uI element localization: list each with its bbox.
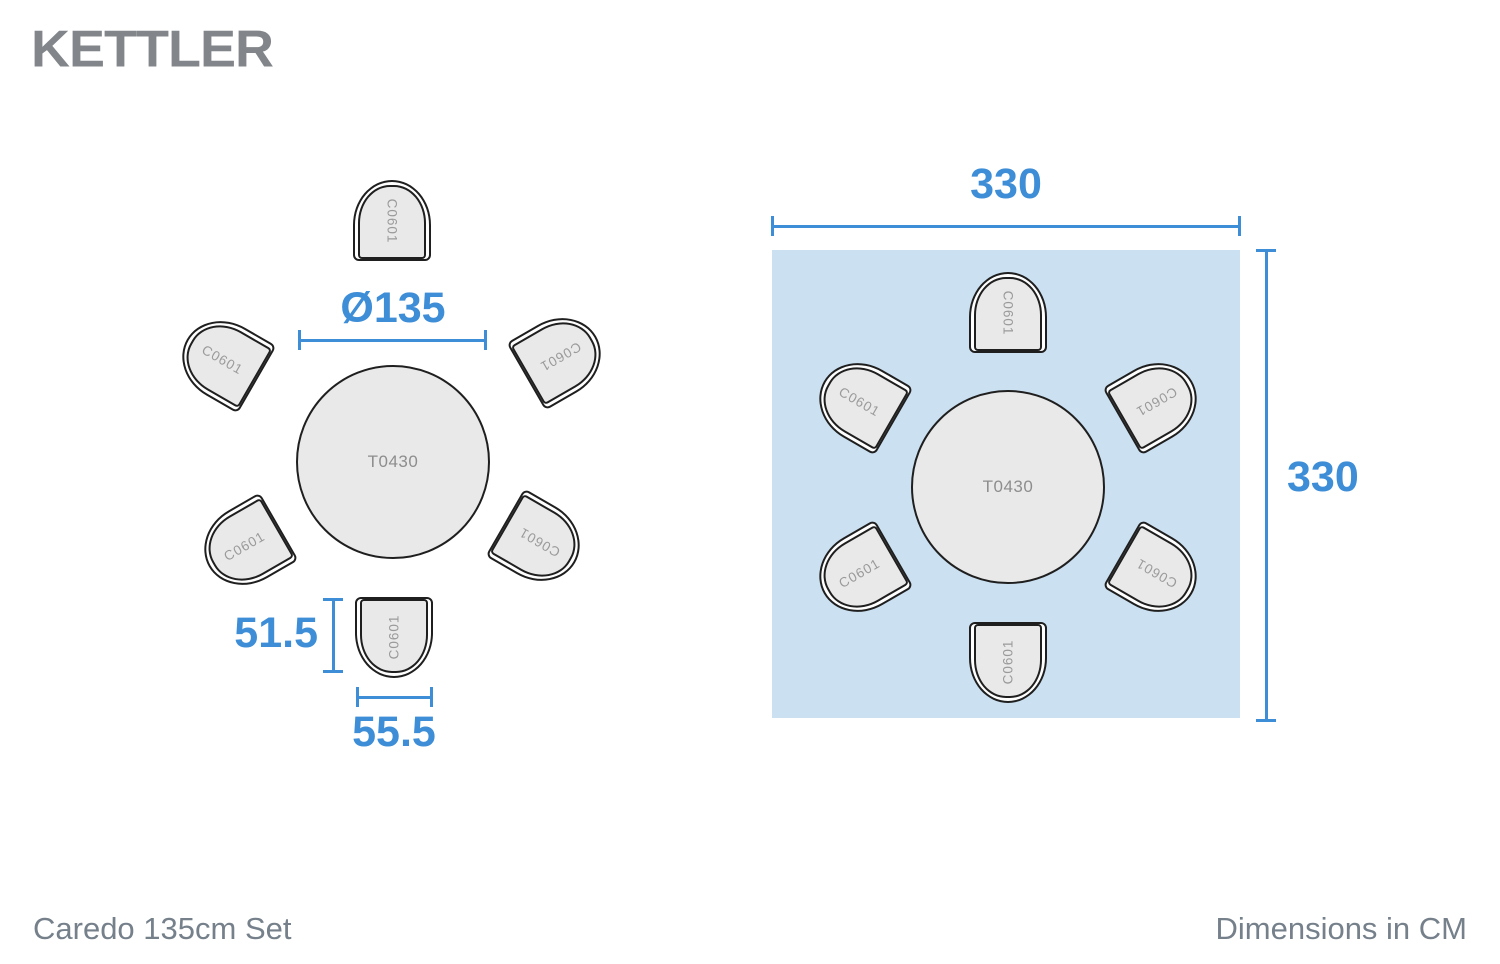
table-code-label: T0430	[368, 452, 419, 472]
chair-code-label: C0601	[1001, 290, 1016, 335]
chair-code-label: C0601	[387, 615, 402, 660]
product-title: Caredo 135cm Set	[33, 913, 291, 944]
chair-code-label: C0601	[385, 198, 400, 243]
chair: C0601	[969, 622, 1047, 703]
footprint-width-label: 330	[881, 163, 1131, 206]
chair-width-label: 55.5	[294, 711, 494, 754]
table-top: T0430	[911, 390, 1105, 584]
chair: C0601	[167, 305, 276, 413]
table-top: T0430	[296, 365, 490, 559]
footprint-height-label: 330	[1287, 456, 1487, 499]
chair: C0601	[353, 180, 431, 261]
table-diameter-label: Ø135	[268, 287, 518, 330]
chair-width-dimension-line	[356, 687, 433, 707]
footprint-width-dimension-line	[771, 216, 1241, 236]
table-code-label: T0430	[983, 477, 1034, 497]
chair: C0601	[189, 492, 298, 600]
chair-code-label: C0601	[1001, 640, 1016, 685]
dimension-bar	[332, 598, 335, 673]
chair-depth-label: 51.5	[180, 612, 318, 655]
chair: C0601	[485, 488, 594, 596]
dimension-tick	[430, 687, 433, 707]
dimension-bar	[1265, 249, 1268, 722]
dimension-tick	[1256, 719, 1276, 722]
chair: C0601	[969, 272, 1047, 353]
dimension-bar	[771, 225, 1241, 228]
dimension-sheet: KETTLER T0430 C0601 C0601 C0601 C0601 C0…	[0, 0, 1500, 964]
dimension-bar	[298, 339, 487, 342]
dimension-tick	[484, 330, 487, 350]
chair: C0601	[506, 302, 615, 410]
dimension-bar	[356, 696, 433, 699]
kettler-logo: KETTLER	[31, 23, 273, 75]
units-note: Dimensions in CM	[1215, 913, 1467, 944]
chair: C0601	[355, 597, 433, 678]
dimension-tick	[1238, 216, 1241, 236]
chair-depth-dimension-line	[323, 598, 343, 673]
dimension-tick	[323, 670, 343, 673]
table-diameter-dimension-line	[298, 330, 487, 350]
footprint-height-dimension-line	[1256, 249, 1276, 722]
